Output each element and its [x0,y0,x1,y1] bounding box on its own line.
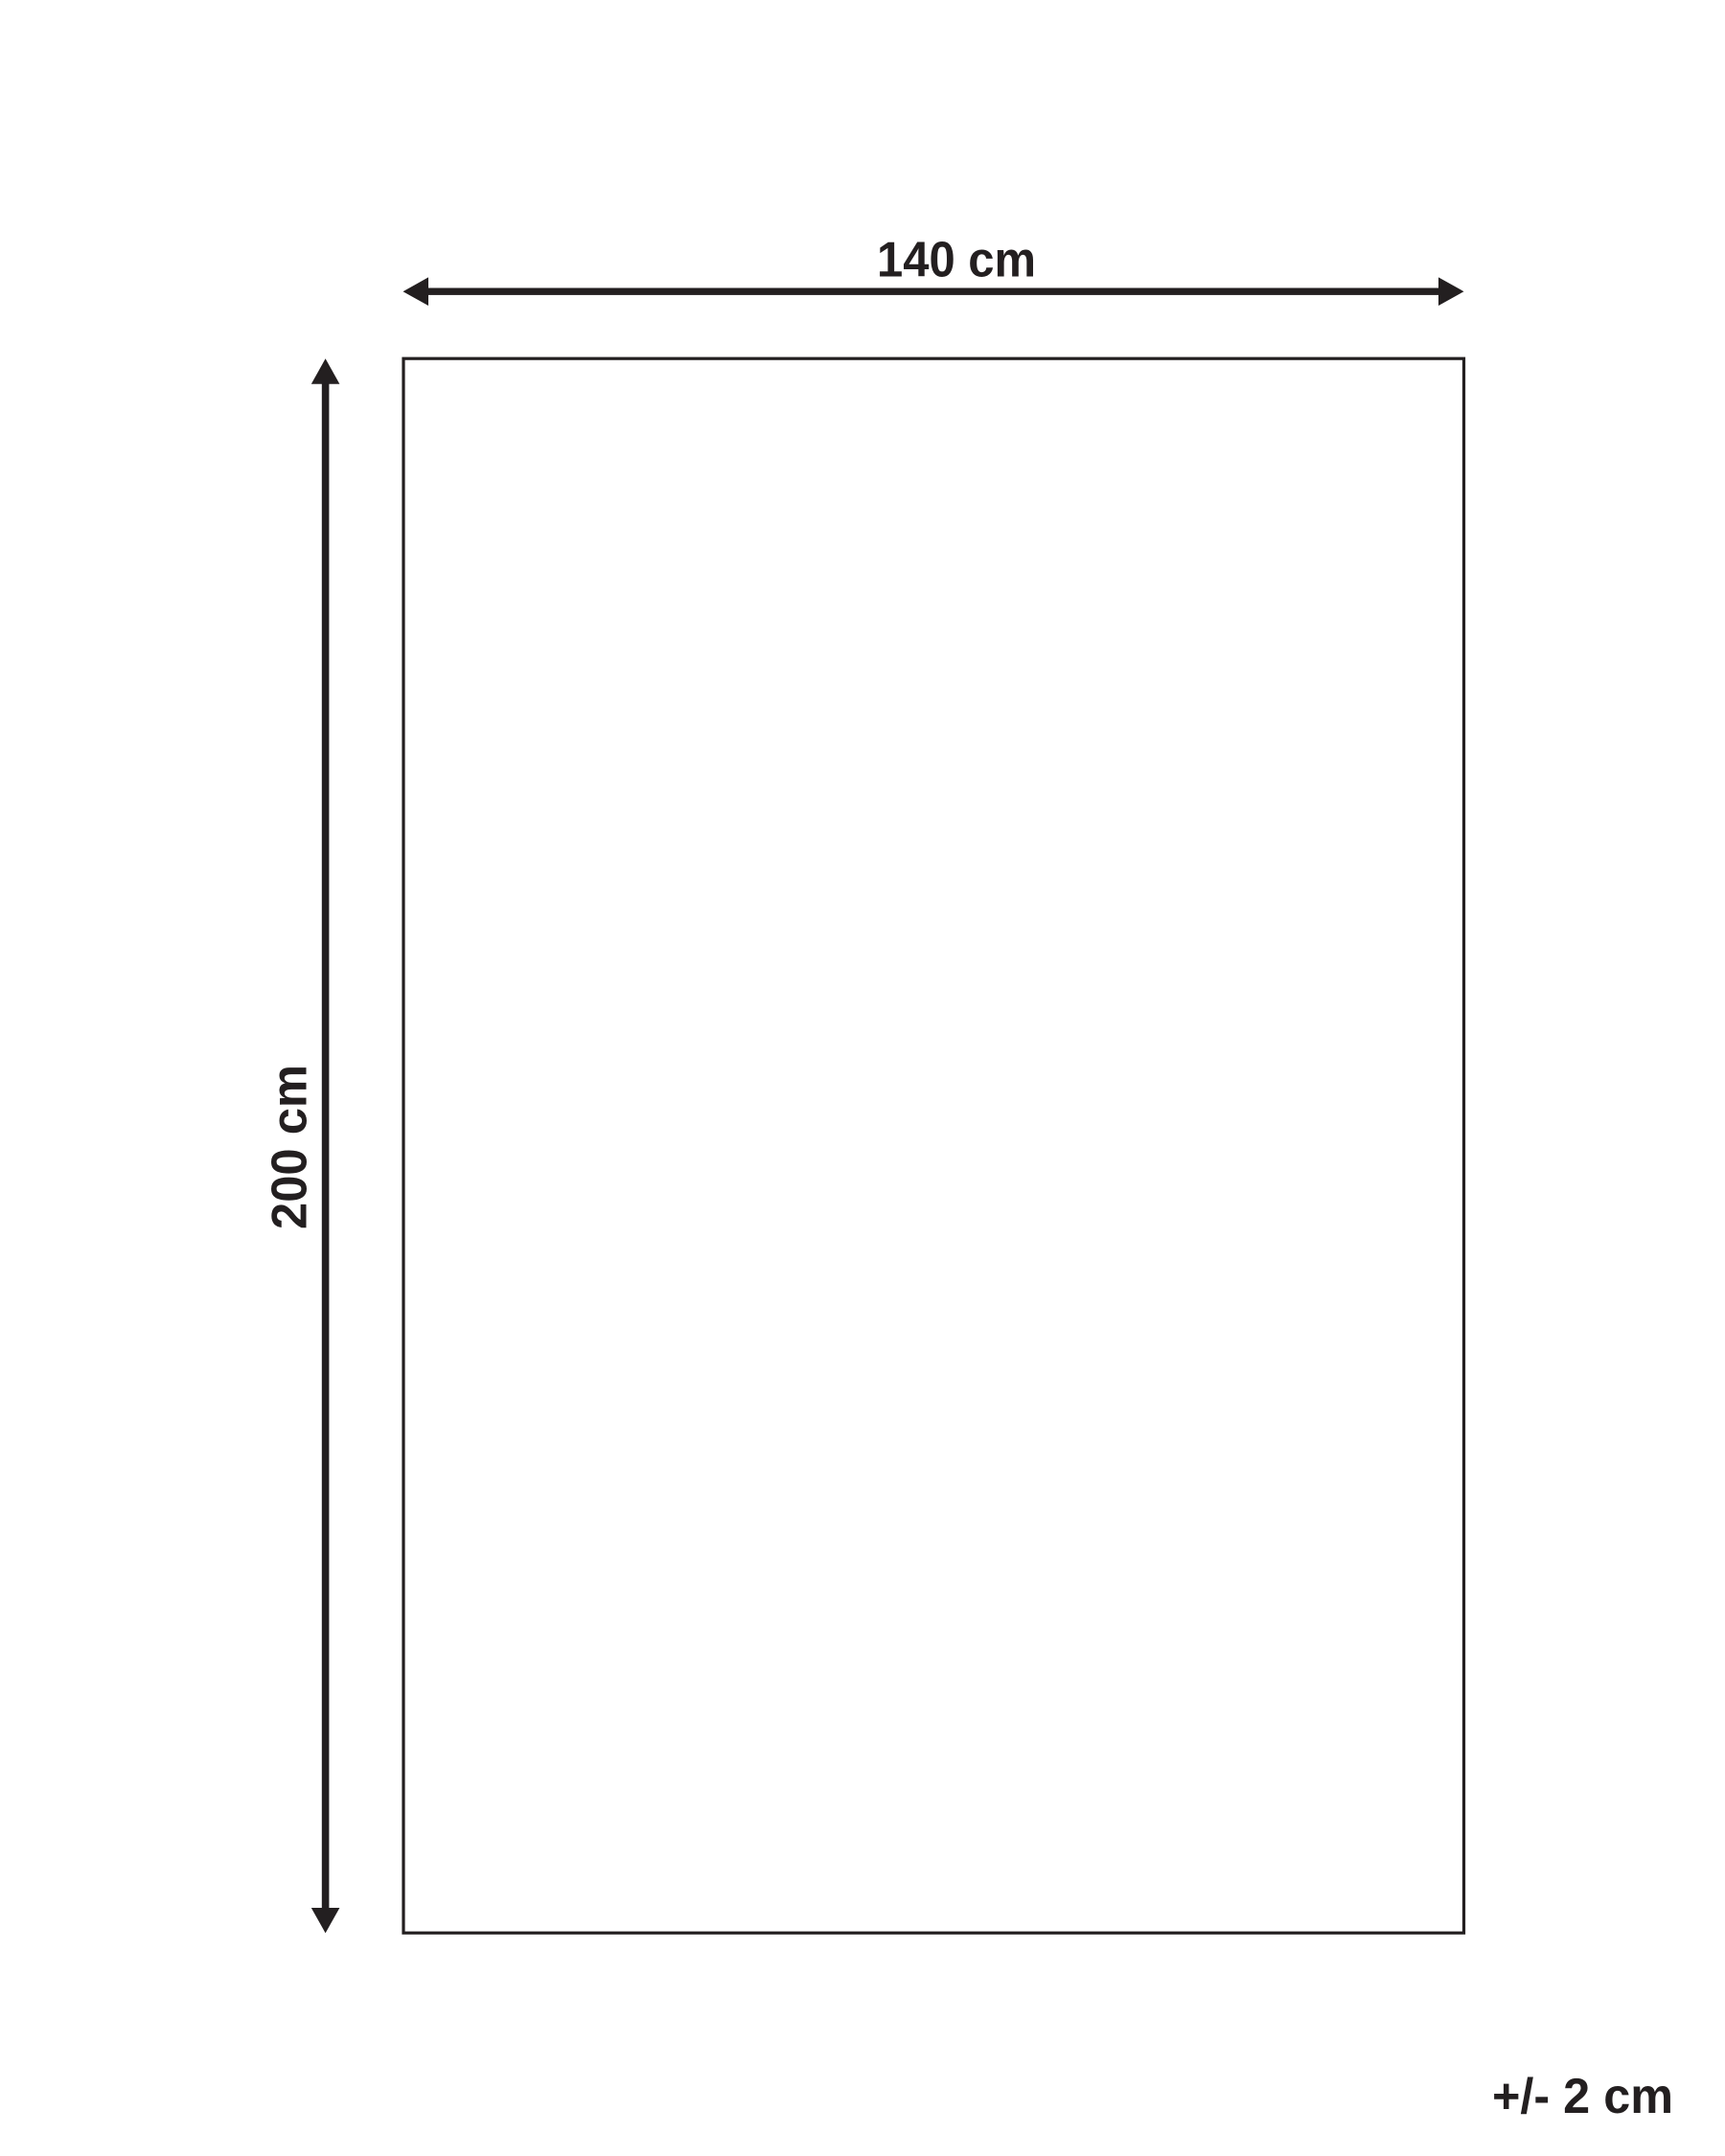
svg-text:140 cm: 140 cm [877,233,1036,288]
svg-text:+/- 2 cm: +/- 2 cm [1492,2069,1673,2124]
svg-text:200 cm: 200 cm [263,1065,318,1229]
